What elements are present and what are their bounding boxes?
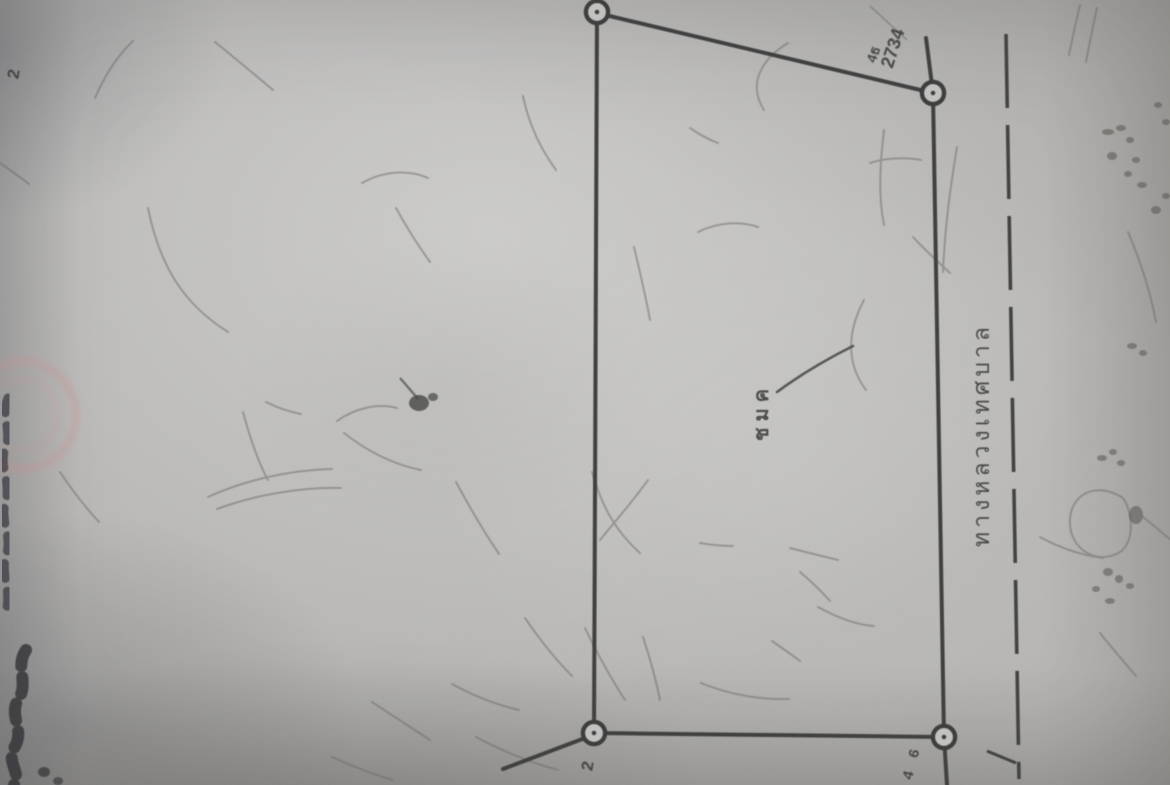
parcel-abbreviation-label: ชมค	[745, 383, 777, 441]
survey-sketch-photo: ทางหลวงเทศบาล 4ธ 2734 ชมค 2 4 6 2	[0, 0, 1170, 785]
road-name-label: ทางหลวงเทศบาล	[964, 323, 1000, 547]
